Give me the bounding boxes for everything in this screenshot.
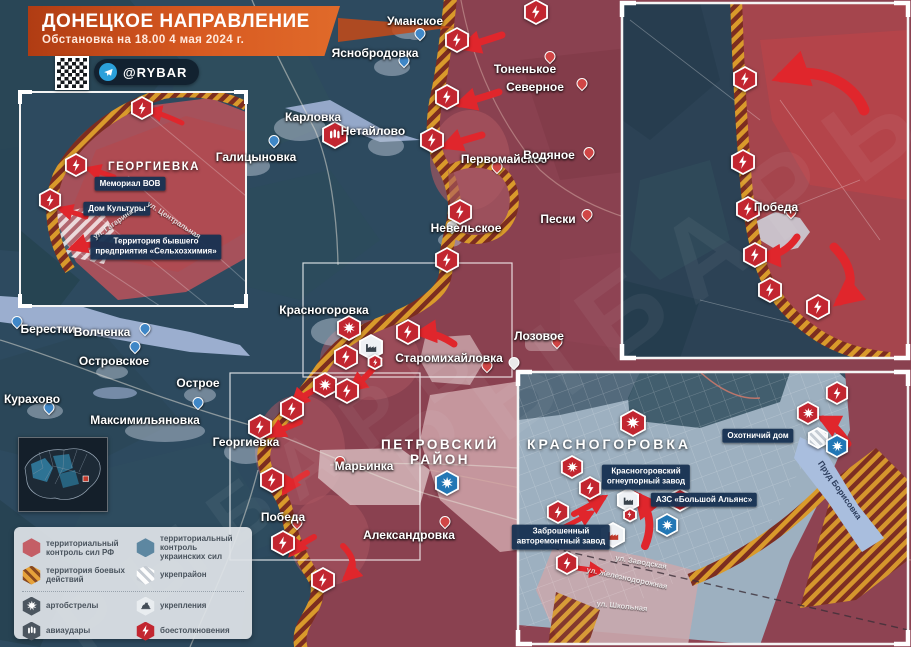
telegram-icon [99, 63, 117, 81]
channel-handle: @RYBAR [123, 65, 187, 80]
legend-label: укрепрайон [160, 570, 207, 579]
legend-swatch-battle-icon [22, 566, 41, 585]
legend-item: территориальный контроль украинских сил [136, 534, 244, 562]
inset-krasnohorivka [518, 372, 908, 645]
inset-georgievka [20, 92, 246, 306]
legend-swatch-rf-icon [22, 538, 41, 557]
legend-label: территориальный контроль сил РФ [46, 539, 130, 557]
legend-item: авиаудары [22, 620, 130, 643]
legend-swatch-fort-icon [136, 597, 155, 616]
legend-divider [22, 591, 244, 592]
legend-label: территория боевых действий [46, 566, 130, 584]
legend-item: артобстрелы [22, 595, 130, 618]
legend-item: укрепления [136, 595, 244, 618]
legend-label: авиаудары [46, 626, 90, 635]
legend-swatch-ukrep-icon [136, 566, 155, 585]
legend-swatch-clash-icon [136, 622, 155, 641]
telegram-badge[interactable]: @RYBAR [94, 59, 199, 85]
legend-label: артобстрелы [46, 601, 98, 610]
legend-item: территория боевых действий [22, 564, 130, 587]
legend-label: территориальный контроль украинских сил [160, 534, 244, 562]
legend-swatch-ua-icon [136, 538, 155, 557]
ukraine-locator-map [18, 437, 108, 512]
legend-item: укрепрайон [136, 564, 244, 587]
inset-pobeda [622, 0, 908, 358]
map-screenshot: РЫБАРЬРЫБАРЬУманскоеЯснобродовкаТоненько… [0, 0, 911, 647]
legend-label: боестолкновения [160, 626, 230, 635]
legend-swatch-arty-dark-icon [22, 597, 41, 616]
qr-code [55, 56, 89, 90]
page-subtitle: Обстановка на 18.00 4 мая 2024 г. [42, 33, 330, 48]
map-legend: территориальный контроль сил РФтерритори… [14, 527, 252, 639]
page-title: ДОНЕЦКОЕ НАПРАВЛЕНИЕ [42, 11, 330, 33]
legend-item: боестолкновения [136, 620, 244, 643]
legend-swatch-avia-dark-icon [22, 622, 41, 641]
legend-item: территориальный контроль сил РФ [22, 534, 130, 562]
donetsk-region-marker [83, 476, 89, 482]
title-banner: ДОНЕЦКОЕ НАПРАВЛЕНИЕ Обстановка на 18.00… [28, 6, 340, 56]
legend-label: укрепления [160, 601, 206, 610]
